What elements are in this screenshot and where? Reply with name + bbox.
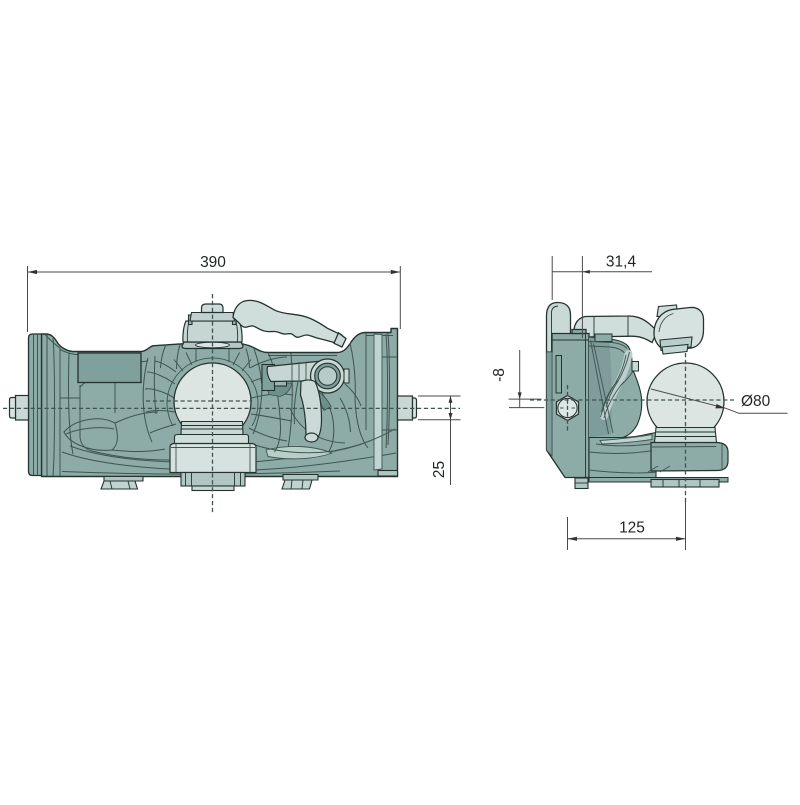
svg-text:390: 390 (200, 254, 226, 271)
svg-text:25: 25 (431, 461, 448, 478)
svg-text:125: 125 (619, 520, 645, 537)
svg-text:Ø80: Ø80 (741, 393, 771, 410)
svg-text:31,4: 31,4 (606, 254, 637, 271)
svg-text:-8: -8 (491, 368, 508, 382)
